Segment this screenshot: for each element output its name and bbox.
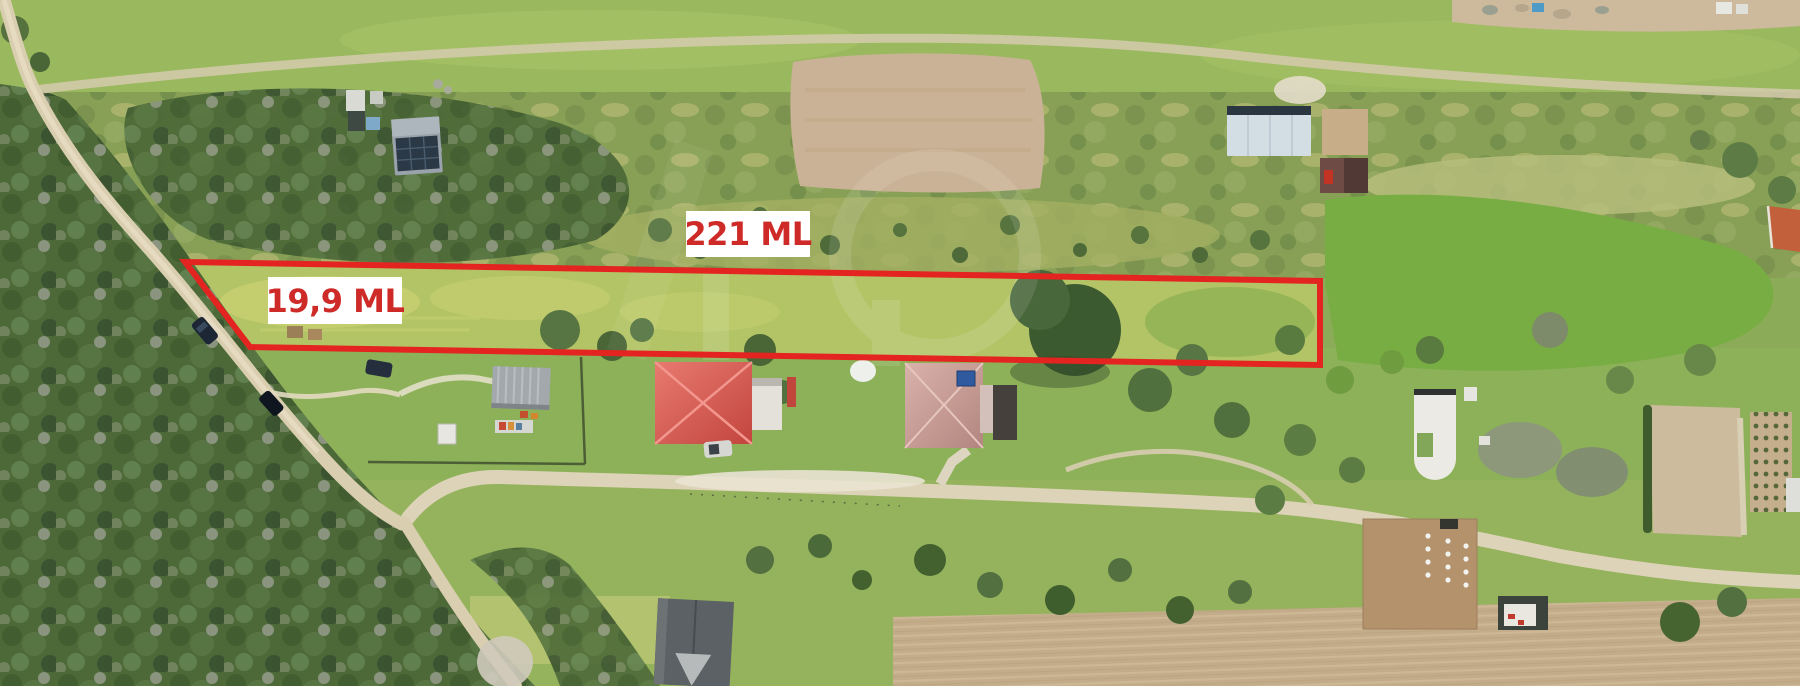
red-garden-item xyxy=(787,377,796,407)
gravel-area xyxy=(477,636,533,686)
planted-rows-bed xyxy=(1750,412,1792,512)
label-plot-length-text: 221 ML xyxy=(684,215,811,253)
road-light-segment xyxy=(675,470,925,492)
beehive-yard xyxy=(1363,519,1477,629)
orange-item xyxy=(531,413,538,419)
trailer-with-items xyxy=(495,420,533,433)
white-item xyxy=(1736,4,1748,14)
aerial-photograph: 221 ML 19,9 ML xyxy=(0,0,1800,686)
hay-patch xyxy=(430,276,610,320)
tree xyxy=(30,52,50,72)
tan-field-right xyxy=(1650,405,1742,537)
solar-panel-shed xyxy=(391,116,443,175)
dark-structure xyxy=(348,111,365,131)
white-house-right-edge xyxy=(1786,478,1800,512)
solar-array xyxy=(395,135,439,171)
small-shed-white xyxy=(346,90,365,111)
dark-roof-section xyxy=(993,385,1017,440)
blue-item xyxy=(1532,3,1544,12)
blue-tarp xyxy=(366,117,380,130)
label-plot-length: 221 ML xyxy=(684,211,811,257)
orange-item xyxy=(520,411,528,418)
grey-shed xyxy=(491,366,550,410)
hedge-row xyxy=(1643,405,1652,533)
aerial-photo-stage: 221 ML 19,9 ML xyxy=(0,0,1800,686)
blue-roof-building xyxy=(1227,106,1311,156)
tan-patio xyxy=(1322,109,1368,155)
label-plot-width-text: 19,9 ML xyxy=(266,282,405,320)
white-box xyxy=(1479,436,1490,445)
tarp-shed xyxy=(1498,596,1548,630)
red-equipment xyxy=(1324,170,1333,184)
solar-panel xyxy=(957,371,975,386)
white-arched-building xyxy=(1414,389,1456,480)
white-item xyxy=(1716,2,1732,14)
side-path xyxy=(1740,418,1744,535)
maroon-roof-building xyxy=(1320,158,1368,193)
small-shed xyxy=(370,91,383,104)
grey-gable-house xyxy=(654,598,734,686)
white-car xyxy=(703,440,732,458)
label-plot-width: 19,9 ML xyxy=(266,277,405,324)
white-box xyxy=(1464,387,1477,401)
sand-patch xyxy=(1274,76,1326,104)
white-garden-shed xyxy=(438,424,456,444)
